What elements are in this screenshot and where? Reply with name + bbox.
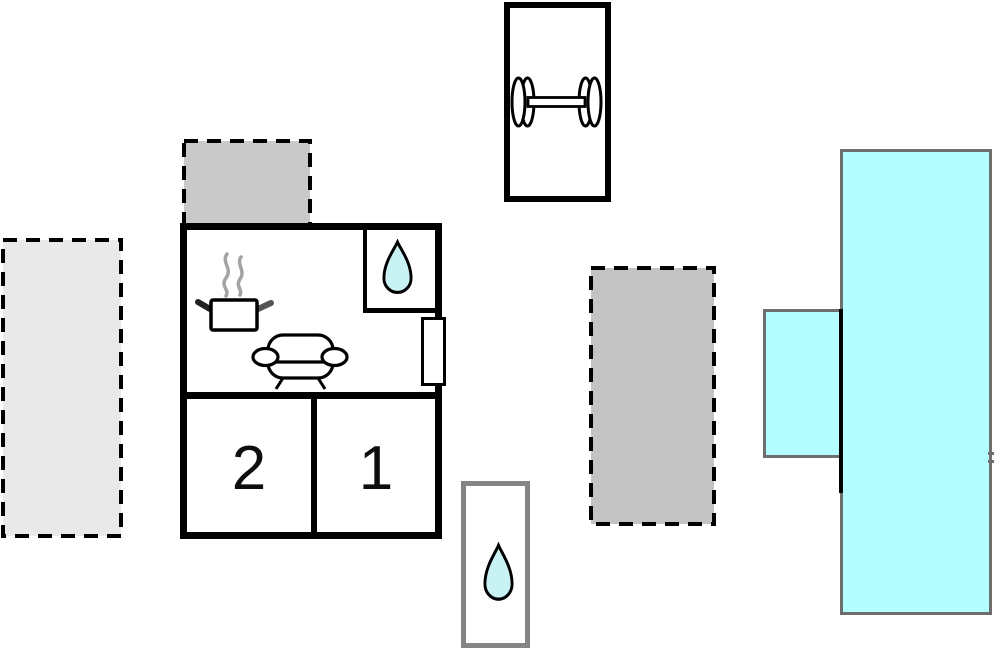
room-number: 2 xyxy=(232,433,266,504)
floor-plan: 2 1 xyxy=(0,0,994,652)
pool-section-small xyxy=(763,309,843,458)
pool-edge-mark xyxy=(988,460,994,463)
interior-wall-horizontal xyxy=(187,392,435,399)
swimming-pool xyxy=(840,149,992,615)
bathroom xyxy=(363,230,435,313)
pool-divider-line xyxy=(839,309,843,493)
cooking-pot-icon xyxy=(198,300,271,330)
terrace-left xyxy=(0,237,124,540)
fitness-room xyxy=(504,2,611,202)
sofa-icon xyxy=(250,333,350,391)
steam-icon xyxy=(224,254,242,296)
terrace-top xyxy=(181,138,313,232)
bedroom-1: 1 xyxy=(317,399,435,532)
pool-edge-mark xyxy=(988,452,994,455)
bedroom-2: 2 xyxy=(187,399,311,532)
room-number: 1 xyxy=(359,433,393,504)
kitchen-area xyxy=(195,248,279,334)
terrace-right xyxy=(588,265,717,527)
water-drop-icon xyxy=(482,542,515,603)
outdoor-shower xyxy=(461,481,530,648)
dumbbell-icon xyxy=(510,74,605,132)
water-drop-icon xyxy=(381,239,414,296)
door xyxy=(421,317,446,386)
house-outline: 2 1 xyxy=(180,223,442,539)
